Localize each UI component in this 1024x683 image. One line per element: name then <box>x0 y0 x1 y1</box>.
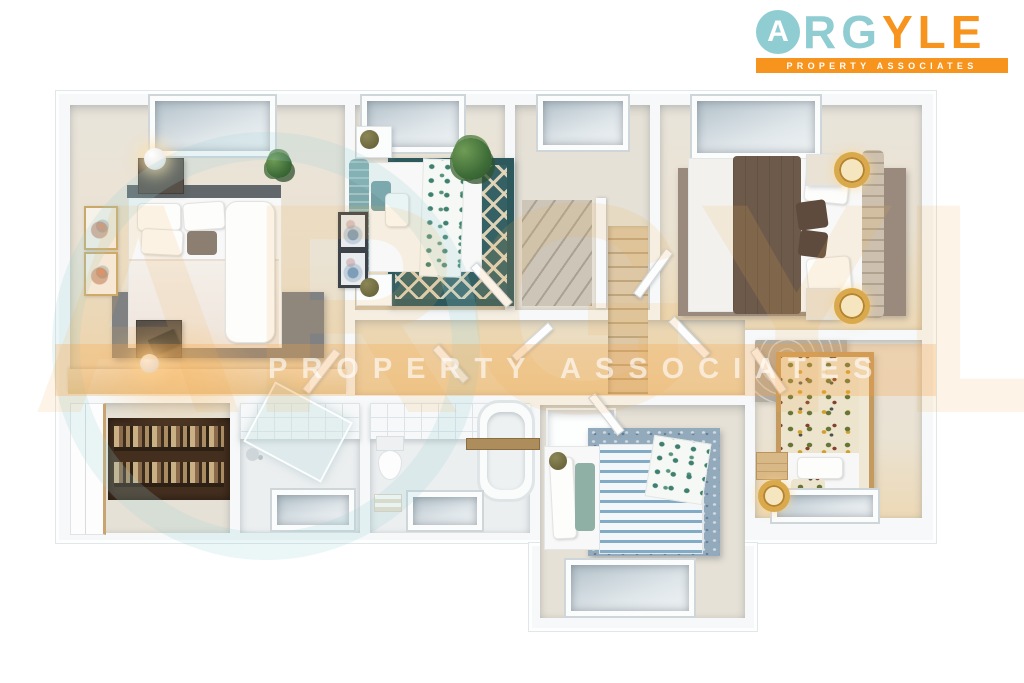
art-print <box>86 254 116 294</box>
floral-duvet <box>781 357 859 453</box>
toilet-cistern <box>376 436 404 451</box>
pillow <box>182 201 226 232</box>
duvet <box>733 156 801 314</box>
gold-lamp <box>834 288 870 324</box>
pillow <box>137 203 181 231</box>
cushion <box>798 229 829 258</box>
brand-name-orange: YLE <box>882 6 986 58</box>
stair-divider-wall <box>596 198 606 308</box>
roof-window <box>408 492 482 530</box>
botanical-throw <box>645 435 712 505</box>
bathtub <box>477 400 535 502</box>
duvet-fold <box>225 201 275 343</box>
sheet <box>689 159 733 311</box>
roof-window <box>272 490 354 530</box>
wall-art <box>338 212 368 250</box>
brand-monogram: A <box>767 15 789 49</box>
pillow <box>575 463 595 531</box>
sphere-lamp <box>144 148 166 170</box>
art-print <box>86 208 116 248</box>
brand-logo-row: A RGYLE <box>756 8 1008 56</box>
crate-nightstand <box>756 452 788 480</box>
bookshelf <box>108 418 230 500</box>
book-row <box>114 462 224 487</box>
roof-window <box>538 96 628 150</box>
sphere-lamp <box>549 452 567 470</box>
wardrobe <box>70 403 106 535</box>
bath-caddy <box>466 438 540 450</box>
brand-logo: A RGYLE PROPERTY ASSOCIATES <box>756 8 1008 73</box>
stair-lower-flight <box>608 226 648 394</box>
roof-window <box>150 96 275 156</box>
floorplan-render: A RGYLE PROPERTY ASSOCIATES <box>0 0 1024 683</box>
pillow <box>385 193 409 227</box>
roof-window <box>692 96 820 158</box>
brand-name-teal: RG <box>803 6 882 58</box>
palm-plant <box>452 138 492 180</box>
art-print <box>341 253 365 285</box>
sphere-lamp <box>360 130 379 149</box>
cushion <box>187 231 217 255</box>
gold-lamp <box>834 152 870 188</box>
shower-head <box>246 448 259 461</box>
floral-bed <box>776 352 874 512</box>
crescent-lamp <box>758 480 790 512</box>
sphere-lamp <box>360 278 379 297</box>
wall-art <box>84 206 118 250</box>
art-print <box>341 215 365 247</box>
blue-bed <box>544 446 704 550</box>
towel-stack <box>374 494 402 512</box>
wall-art <box>84 252 118 296</box>
bathtub-basin <box>487 412 525 490</box>
brand-monogram-circle: A <box>756 10 800 54</box>
stair-upper-flight <box>522 200 592 306</box>
botanical-throw <box>419 158 465 277</box>
pillow <box>140 228 183 256</box>
cushion <box>795 199 829 231</box>
sphere-lamp <box>140 354 159 373</box>
brand-tagline-banner: PROPERTY ASSOCIATES <box>756 58 1008 73</box>
warm-light <box>90 320 260 430</box>
plant <box>266 152 292 178</box>
brand-name: RGYLE <box>803 9 986 55</box>
pillow <box>797 457 843 479</box>
roof-window <box>566 560 694 616</box>
